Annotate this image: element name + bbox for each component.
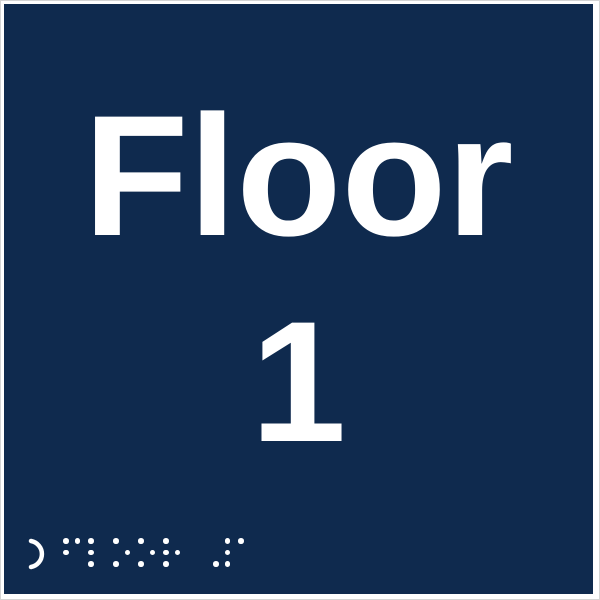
braille-dot xyxy=(88,538,94,544)
floor-title: Floor xyxy=(4,90,593,262)
floor-number: 1 xyxy=(4,296,593,468)
braille-dot xyxy=(225,538,231,544)
sign-panel: Floor 1 xyxy=(4,4,593,594)
braille-dot xyxy=(113,538,119,544)
braille-dot xyxy=(163,550,169,556)
braille-dot xyxy=(63,550,69,556)
braille-dot xyxy=(238,538,244,544)
braille-dot xyxy=(163,561,169,567)
braille-dot xyxy=(88,561,94,567)
braille-dot xyxy=(138,561,144,567)
braille-dot xyxy=(150,550,156,556)
braille-locator-arc-icon xyxy=(27,537,49,571)
braille-dot xyxy=(175,550,181,556)
braille-dot xyxy=(225,561,231,567)
braille-dot xyxy=(125,550,131,556)
sign-canvas: Floor 1 xyxy=(0,0,600,600)
braille-cells xyxy=(63,538,263,572)
braille-dot xyxy=(63,538,69,544)
braille-dot xyxy=(113,561,119,567)
braille-dot xyxy=(213,561,219,567)
braille-dot xyxy=(75,538,81,544)
braille-dot xyxy=(225,550,231,556)
braille-dot xyxy=(88,550,94,556)
braille-dot xyxy=(138,538,144,544)
braille-dot xyxy=(163,538,169,544)
